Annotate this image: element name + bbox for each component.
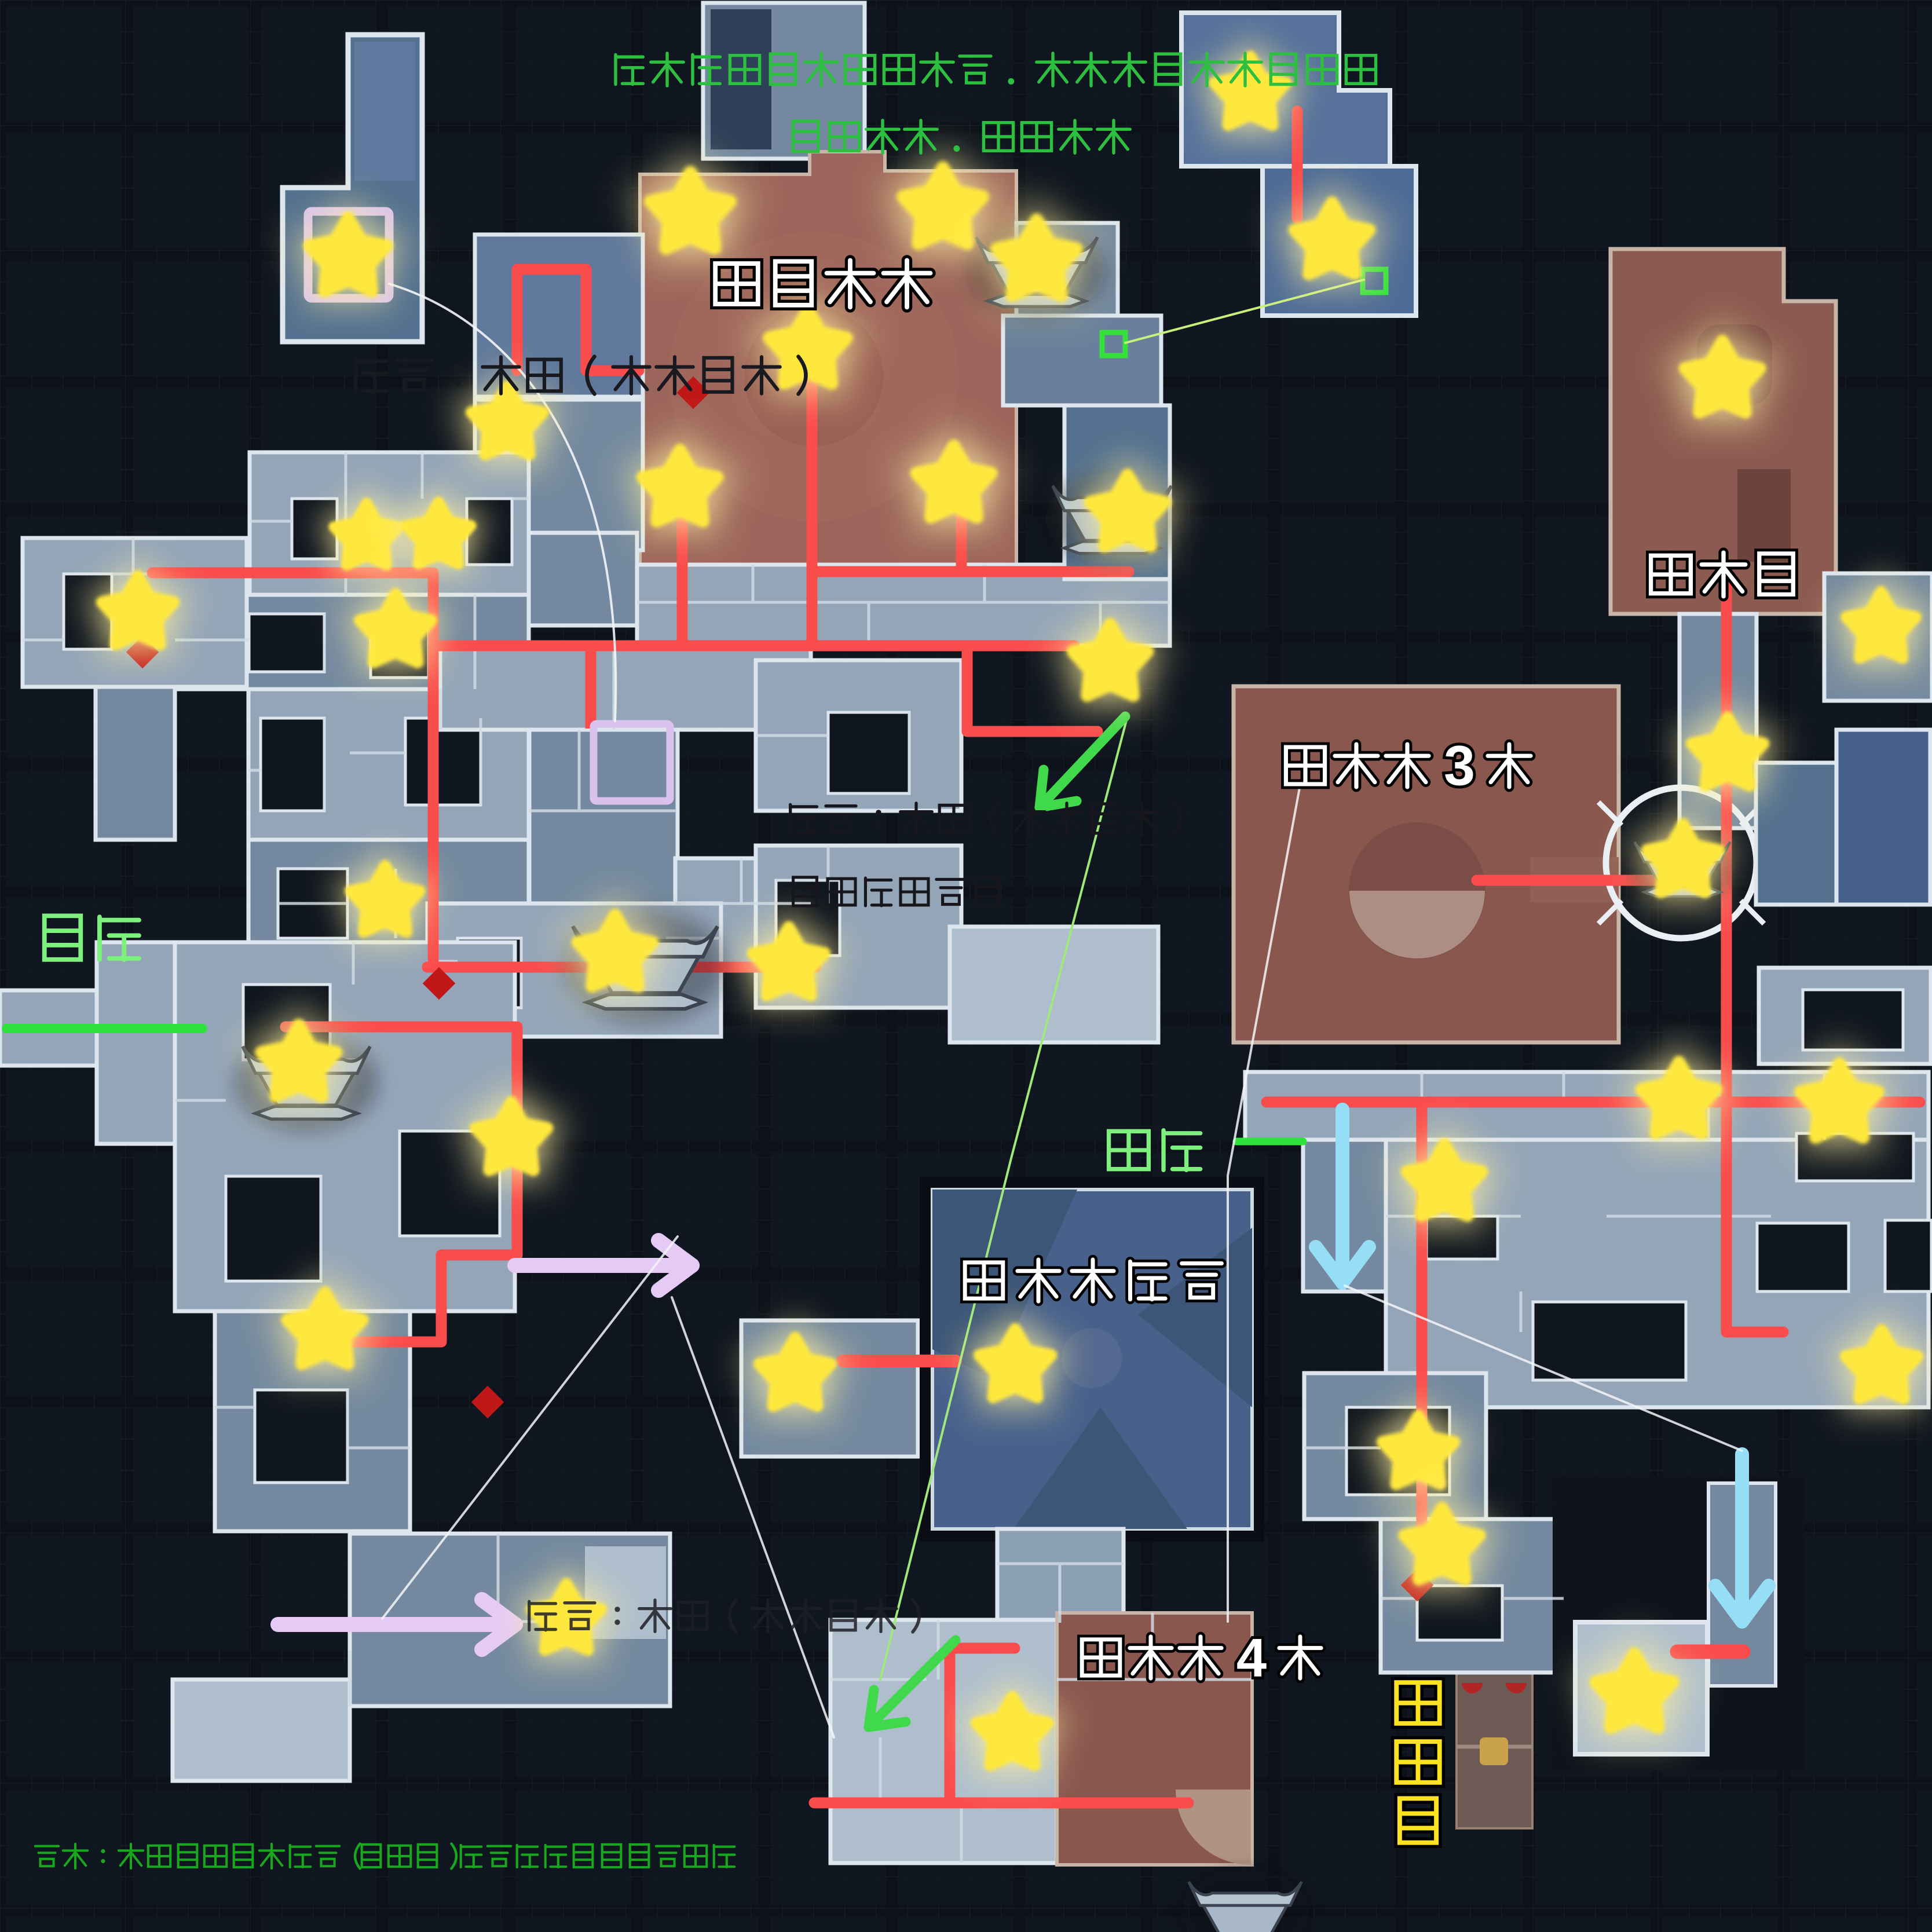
svg-text:4: 4 xyxy=(1236,1627,1267,1688)
svg-text:3: 3 xyxy=(1444,734,1475,797)
